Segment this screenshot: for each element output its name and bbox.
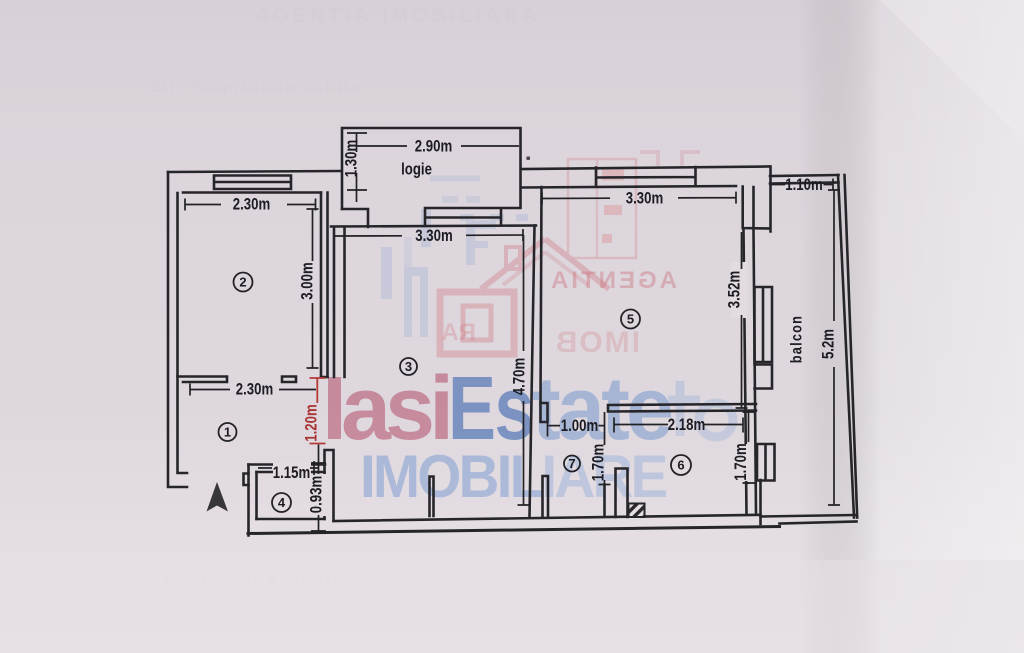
- svg-text:4.70m: 4.70m: [510, 358, 529, 395]
- svg-text:balcon: balcon: [788, 315, 806, 363]
- svg-text:1.00m: 1.00m: [561, 417, 598, 436]
- svg-text:1.10m: 1.10m: [785, 176, 822, 195]
- svg-text:3.30m: 3.30m: [626, 189, 663, 208]
- svg-text:AGENTIA IMOBILIARA: AGENTIA IMOBILIARA: [255, 5, 541, 27]
- svg-text:5.2m: 5.2m: [819, 329, 838, 359]
- svg-text:logie: logie: [401, 160, 432, 179]
- svg-text:1.15m: 1.15m: [273, 464, 310, 483]
- svg-text:apartament 3 camere: apartament 3 camere: [165, 572, 343, 588]
- svg-text:2: 2: [239, 275, 246, 290]
- svg-text:2.30m: 2.30m: [236, 380, 273, 399]
- svg-text:1.20m: 1.20m: [302, 404, 321, 441]
- svg-text:2.18m: 2.18m: [668, 416, 705, 435]
- svg-text:3.00m: 3.00m: [298, 262, 317, 299]
- svg-text:RA: RA: [441, 319, 476, 346]
- svg-text:1: 1: [224, 425, 231, 440]
- svg-text:2.90m: 2.90m: [415, 137, 452, 156]
- svg-text:IMOBILIARE: IMOBILIARE: [360, 444, 666, 511]
- svg-text:AGENTIA: AGENTIA: [548, 267, 677, 294]
- svg-text:0.93m: 0.93m: [307, 476, 326, 513]
- svg-text:1.70m: 1.70m: [589, 444, 608, 481]
- svg-text:3: 3: [405, 359, 412, 374]
- svg-text:Str. Proprietate schita: Str. Proprietate schita: [150, 79, 361, 96]
- svg-text:3.30m: 3.30m: [415, 227, 452, 246]
- svg-text:1.30m: 1.30m: [342, 140, 361, 177]
- svg-text:2.30m: 2.30m: [233, 195, 270, 214]
- svg-text:7: 7: [568, 456, 575, 471]
- svg-text:1.70m: 1.70m: [732, 443, 751, 480]
- svg-text:IMOB: IMOB: [554, 326, 640, 359]
- svg-text:5: 5: [627, 312, 634, 327]
- svg-text:4: 4: [278, 495, 286, 510]
- svg-text:6: 6: [677, 458, 684, 473]
- svg-text:3.52m: 3.52m: [725, 271, 744, 308]
